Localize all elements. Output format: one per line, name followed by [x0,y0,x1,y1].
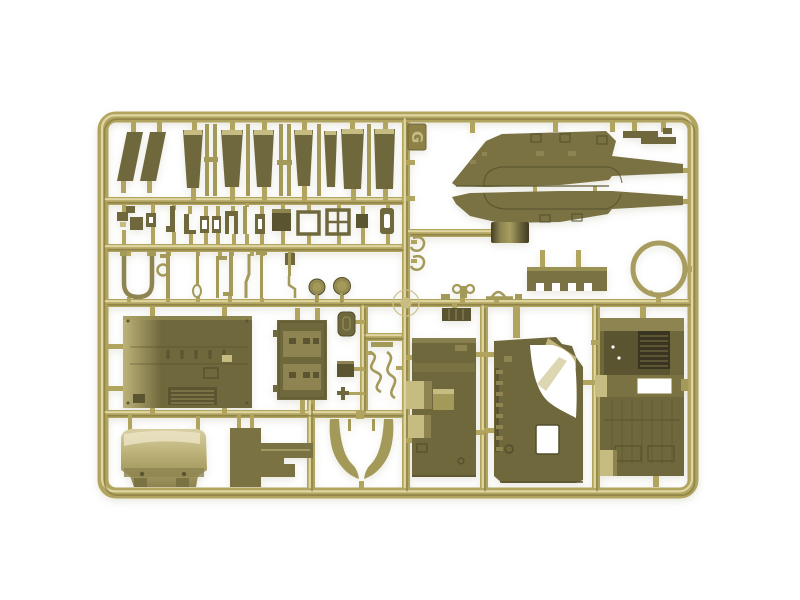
gates-42 [361,228,365,244]
hatch-latch-1 [289,338,296,344]
ws-flange-l [120,251,127,256]
hull-lower-part [452,191,683,223]
hatch-tab-2 [273,385,278,392]
guard-pin-l [348,419,351,431]
floor-bolt-2 [246,320,249,323]
gates-94 [513,307,520,338]
mirror-b-face [337,281,347,291]
cab-detail-tab [504,356,512,362]
gates-96 [484,428,495,433]
rod-lever-row [120,251,351,303]
ring-hoop [633,243,685,295]
floor-bolt-3 [127,402,130,405]
windshield-frame [124,254,152,297]
hatch-latch-4 [289,372,296,378]
floor-corner-detail [133,394,145,403]
u-channel-left [225,211,229,234]
gates-110 [411,259,417,263]
slot-plate-hole [384,214,390,228]
board-notch-1 [536,283,544,291]
gates-33 [189,234,193,244]
hull-clip-1 [536,151,544,156]
gates-92 [476,352,485,357]
taper-strip-1 [183,130,203,188]
post-bracket [170,206,175,228]
wingnut-loop-r [466,285,474,293]
floor-top-edge [123,316,252,320]
channel-b-slot [214,220,219,229]
gates-87 [355,320,365,324]
gates-91 [406,438,413,443]
mirror-housing [338,312,355,336]
loop-rod [196,252,199,286]
board-notch-3 [568,283,576,291]
gates-85 [315,308,320,320]
gates-101 [128,414,132,430]
gates-79 [222,307,227,317]
gates-1 [157,122,162,133]
bracket-c [130,217,143,230]
fender-socket-r [182,472,186,476]
flat-bar [371,342,393,347]
gates-54 [166,298,170,302]
rod-crossbar-2 [277,160,292,165]
fender-bottom-band [124,468,204,477]
gates-43 [386,234,390,244]
lever-rod [288,252,291,276]
taper-strip-2 [221,130,243,187]
tall-rod [229,252,233,296]
strip-cap-7 [325,131,336,135]
engine-hole-1 [611,345,614,348]
running-board-part [527,267,607,291]
t-rod-top [256,251,267,255]
gates-99 [591,340,601,345]
strip-cap-1 [184,130,202,135]
gates-90 [406,355,413,360]
strip-cap-4 [295,130,312,135]
mirror-a-face [313,283,322,292]
gates-93 [476,430,485,435]
channel-a-slot [202,220,207,229]
rod-strip-4 [317,124,321,196]
engine-hole-2 [617,356,620,359]
gates-4 [262,122,267,131]
stepped-bracket [230,428,313,487]
gates-38 [260,234,264,244]
floor-vent [168,387,217,405]
engine-bay-panel-part [595,318,688,476]
hatch-latch-5 [303,372,310,378]
hull-clip-2 [568,151,576,156]
rod-strip-5 [367,124,371,196]
gates-50 [250,252,254,256]
bracket-detail [120,222,126,227]
top-bracket-tab [663,128,672,134]
hatch-tab-1 [273,330,278,337]
floor-bolt-1 [127,320,130,323]
floor-panel-part [123,316,252,408]
small-pad-a [441,294,450,300]
clip-slot [149,217,153,223]
post-foot [166,226,175,232]
gates-108 [396,366,402,370]
gates-73 [540,250,545,268]
gates-89 [349,392,365,395]
firewall-detail-tab [455,345,467,351]
taper-strip-3 [253,130,274,187]
s-linkage-a [370,352,381,392]
fender-foot-l [134,478,147,487]
gates-102 [196,416,200,430]
wingnut-loop-l [453,285,461,293]
engine-top-bar [600,318,684,331]
sprue-illustration: G [0,0,800,600]
engine-shelf-tab-r [681,379,688,391]
slant-strip-b [140,132,166,181]
hull-mark-2 [482,152,487,156]
taper-strip-4 [294,130,313,186]
gates-32 [172,232,176,244]
fender-foot-r [176,478,189,487]
gates-3 [230,122,235,131]
engine-shelf-cutout [637,378,672,394]
gates-60 [470,122,475,133]
gates-103 [237,414,241,429]
radiator-grille [638,331,670,369]
gates-37 [245,234,249,244]
board-notch-2 [552,283,560,291]
gates-36 [232,234,236,244]
grille-ribs [640,336,668,366]
strip-cap-3 [254,130,273,135]
guard-left-horn [330,419,359,479]
small-pad-b [515,294,522,300]
gates-24 [260,206,264,214]
board-notch-4 [584,283,592,291]
taper-strip-5 [324,131,337,187]
gates-25 [281,205,285,209]
hatch-latch-2 [303,338,310,344]
firewall-top-edge [412,338,476,343]
gates-10 [191,188,196,202]
gates-84 [295,308,300,320]
gates-13 [302,186,307,202]
floor-clasp [222,355,232,362]
ring-hoop-part [633,243,685,295]
stowage-box-3-top [433,389,454,394]
gates-100 [653,475,659,487]
small-panel-edge [272,209,291,213]
gates-95 [484,352,495,357]
strip-cap-6 [375,129,394,134]
taper-strip-7 [374,129,395,189]
gates-16 [122,205,126,212]
gates-56 [228,296,232,302]
t-rod [260,252,263,298]
strip-cap-2 [222,130,242,135]
bracket-b [126,206,135,213]
channel-c-slot [258,219,262,229]
tall-rod-foot [223,292,230,296]
dark-cube-edge [337,361,354,364]
window-frame [298,212,319,234]
gates-61 [553,122,558,132]
gates-39 [281,231,285,244]
runner-cross-boss [401,298,412,309]
slant-strip-a [117,132,143,181]
mirror-b-stem [340,293,343,303]
hatch-latch-3 [313,338,319,344]
rod-crossbar-1 [204,157,218,162]
small-bracket-row [117,206,394,234]
gates-86 [300,399,305,415]
front-fender-part [121,429,207,487]
gates-22 [231,206,235,211]
cab-side-panel-part [494,337,583,483]
gates-57 [260,298,264,302]
firewall-ridge [413,363,475,372]
gates-7 [383,121,388,130]
hull-mark-1 [470,160,476,164]
gates-11 [230,187,235,202]
bent-rod [246,254,249,298]
stowage-box-2-face [424,415,431,438]
gates-88 [354,367,365,371]
sprue-letter-tab: G [408,124,426,150]
gates-97 [583,380,597,385]
thin-post [243,206,247,234]
hatch-latch-6 [313,372,319,378]
guard-pin-r [372,419,375,431]
ring-rod-tab [160,254,166,258]
mirror-a-stem [315,294,318,303]
gates-2 [192,122,197,131]
fender-socket-l [140,472,144,476]
gates-15 [383,189,388,202]
gates-6 [350,121,355,130]
gates-12 [262,187,267,202]
gates-44 [127,252,131,256]
gates-69 [632,122,637,132]
gates-21 [216,206,220,216]
gates-31 [151,227,155,244]
wingnut-body [460,286,467,298]
hull-lower-body [452,191,683,223]
gates-74 [576,250,581,268]
engine-foot-edge [613,450,617,476]
sprue-letter: G [408,131,426,143]
floor-bolt-4 [246,402,249,405]
l-rod [216,256,219,298]
gates-106 [359,481,364,489]
loop-rod-eye [193,285,201,297]
gates-34 [204,233,208,244]
gates-30 [122,230,126,244]
gates-109 [411,240,417,244]
gates-28 [361,206,365,214]
tiny-tee-h [337,391,349,395]
strip-parts-row [117,124,395,196]
gates-98 [640,307,646,319]
gates-19 [188,206,192,214]
gates-0 [131,122,136,133]
gates-8 [121,179,126,193]
engine-bay-wall [670,331,684,375]
s-linkage-b [387,352,395,398]
stowage-box-1-face [424,381,432,409]
gates-66 [406,196,415,201]
hatch-panel-part [273,320,327,400]
lever-z [289,276,295,298]
taper-strip-6 [341,129,364,189]
gates-5 [302,122,307,131]
gates-17 [151,205,155,213]
model-kit-sprue-photo: G [0,0,800,600]
gates-14 [351,189,356,202]
stepped-bracket-part [230,428,313,487]
fender-guard-pair-part [330,419,394,479]
u-channel-right [234,211,238,234]
gates-80 [108,344,124,349]
gates-35 [216,233,220,244]
cab-window-hole [536,425,559,454]
ws-flange-r [149,251,156,256]
gates-9 [147,179,152,193]
l-bracket-foot [184,230,196,234]
gates-78 [150,307,155,317]
running-board-top-edge [527,267,607,271]
firewall-panel-part [406,338,476,477]
strip-cap-5 [342,129,363,134]
storage-drum-part [491,222,529,243]
engine-shelf-tab-l [595,375,607,397]
bracket-a [117,212,128,221]
dark-block [356,214,368,228]
gates-104 [250,414,254,429]
gates-62 [610,122,615,132]
gates-65 [406,160,415,165]
gates-20 [204,206,208,216]
guard-right-horn [364,419,393,479]
rod-strip-2 [246,124,250,196]
gates-105 [356,411,364,419]
gates-81 [108,386,124,391]
